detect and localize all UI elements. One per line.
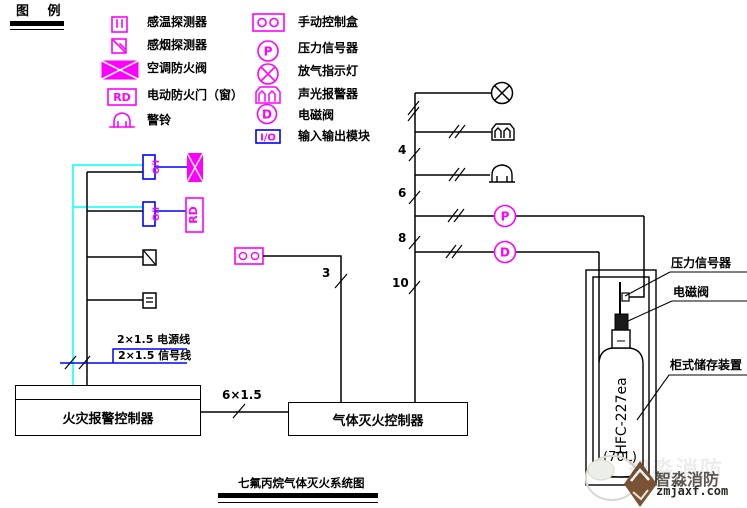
sound-light-alarm-device [492, 124, 514, 140]
legend-label-sound-light-alarm: 声光报警器 [298, 88, 358, 101]
count-8-label: 8 [398, 232, 406, 245]
legend-label-temp-detector: 感温探测器 [147, 16, 207, 29]
manual-control-box-icon [253, 14, 284, 31]
count-3-label: 3 [322, 267, 330, 280]
bus-wire [201, 404, 288, 418]
gas-cylinder: HFC-227ea (70L) [599, 282, 643, 477]
fire-alarm-controller-panel: 火灾报警控制器 [15, 385, 201, 436]
solenoid-on-valve [615, 314, 628, 330]
legend-label-io-module: 输入输出模块 [298, 130, 370, 143]
legend-title-underline [10, 21, 64, 26]
io-glyph: I/O [150, 160, 160, 175]
fire-door-device: RD [186, 198, 203, 232]
panel-header-band [16, 386, 200, 400]
io-module-icon: I/O [256, 130, 280, 144]
count-6-label: 6 [398, 187, 406, 200]
cylinder-model-text: HFC-227ea [614, 377, 630, 454]
alarm-bell-icon [110, 113, 134, 127]
legend-label-pressure-signal: 压力信号器 [298, 42, 358, 55]
pressure-signal-device: P [495, 206, 516, 227]
watermark-site: zmjaxf.com [656, 484, 728, 498]
io-module-1: I/O [143, 155, 160, 179]
legend-label-alarm-bell: 警铃 [147, 114, 171, 127]
title-underline [218, 493, 378, 498]
count-10-label: 10 [392, 277, 409, 290]
gas-controller-panel: 气体灭火控制器 [288, 402, 468, 436]
alarm-bell-device [489, 165, 515, 182]
d-glyph: D [262, 108, 272, 122]
ac-fire-damper-icon [102, 61, 138, 79]
legend-icons: RD P [102, 14, 284, 144]
rd-glyph: RD [187, 206, 200, 224]
io-glyph: I/O [150, 207, 160, 222]
legend-title-underline-thin [10, 29, 64, 30]
ac-damper-device [187, 153, 203, 182]
p-glyph: P [264, 45, 273, 59]
smoke-detector-device [143, 250, 156, 265]
gas-controller-label: 气体灭火控制器 [289, 403, 467, 435]
p-glyph: P [501, 210, 510, 224]
legend-label-solenoid: 电磁阀 [298, 109, 334, 122]
cabinet-callout: 柜式储存装置 [670, 359, 742, 372]
legend-label-ac-damper: 空调防火阀 [147, 62, 207, 75]
legend-label-manual-box: 手动控制盒 [298, 16, 358, 29]
fire-alarm-controller-label: 火灾报警控制器 [16, 400, 200, 435]
solenoid-callout: 电磁阀 [673, 286, 709, 299]
d-glyph: D [500, 246, 510, 260]
legend-title: 图 例 [16, 5, 68, 19]
power-line-label: 2×1.5 电源线 [117, 334, 190, 346]
diagram-canvas: RD P [0, 0, 747, 508]
bus-label: 6×1.5 [222, 389, 262, 402]
drawing-title: 七氟丙烷气体灭火系统图 [238, 477, 365, 490]
gas-indicator-lamp-icon [258, 64, 278, 84]
legend-label-smoke-detector: 感烟探测器 [147, 39, 207, 52]
solenoid-valve-icon: D [258, 105, 277, 124]
title-underline-thin [218, 502, 378, 503]
temp-detector-device [143, 293, 156, 308]
io-module-2: I/O [143, 202, 160, 226]
legend-label-gas-indicator: 放气指示灯 [298, 65, 358, 78]
count-4-label: 4 [398, 144, 406, 157]
smoke-detector-icon [112, 39, 126, 53]
pressure-signal-callout: 压力信号器 [671, 257, 731, 270]
io-glyph: I/O [260, 133, 276, 144]
rd-glyph: RD [113, 91, 131, 104]
temp-detector-icon [112, 17, 127, 32]
fire-door-rd-icon: RD [108, 89, 136, 105]
gas-release-lamp-device [492, 83, 513, 104]
sound-light-alarm-icon [256, 87, 280, 103]
pressure-signal-icon: P [258, 41, 278, 61]
signal-line-label: 2×1.5 信号线 [118, 350, 191, 362]
solenoid-circle-device: D [495, 242, 516, 263]
wire-count-marks [408, 101, 465, 294]
legend-label-fire-door: 电动防火门（窗） [147, 89, 243, 102]
container-valve [612, 330, 630, 348]
